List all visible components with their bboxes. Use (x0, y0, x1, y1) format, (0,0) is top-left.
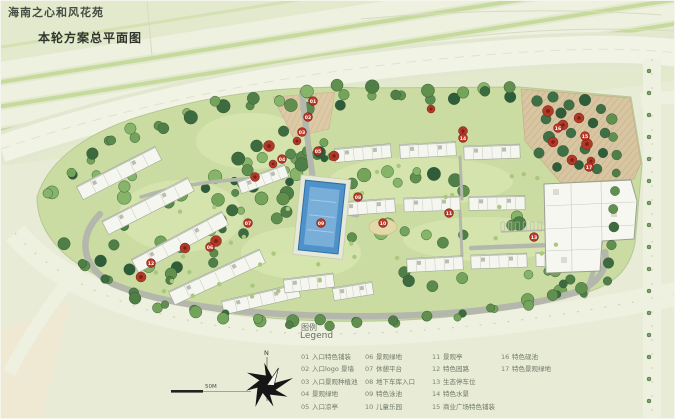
tree (421, 230, 431, 240)
tree (575, 282, 587, 294)
shrub (554, 243, 558, 247)
legend-column: 06景观绿地07休憩平台08地下车库入口09特色泳池10儿童乐园 (365, 351, 415, 413)
legend: 图例 Legend 01入口特色铺装02入口logo 景墙03入口景观种植池04… (299, 322, 649, 417)
tree (117, 190, 131, 204)
red-tree-center (585, 142, 589, 146)
plan-marker-number: 11 (446, 211, 452, 217)
red-tree-center (546, 109, 550, 113)
plan-marker-number: 03 (299, 130, 305, 136)
tree (161, 301, 169, 309)
tree (331, 79, 343, 91)
shrub (395, 256, 399, 260)
tree (271, 213, 282, 224)
building (400, 142, 457, 159)
tree (357, 168, 371, 182)
tree (609, 222, 619, 232)
tree (208, 258, 218, 268)
plan-marker-number: 17 (586, 165, 592, 171)
tree (480, 86, 490, 96)
legend-item: 08地下车库入口 (365, 376, 415, 388)
building (469, 196, 525, 211)
tree (403, 275, 415, 287)
page-subtitle: 本轮方案总平面图 (38, 29, 142, 46)
tree (592, 164, 602, 174)
legend-column: 01入口特色铺装02入口logo 景墙03入口景观种植池04景观绿地05入口凉亭 (301, 351, 358, 413)
tree (606, 114, 617, 125)
scale-label: 50M (205, 384, 217, 390)
tree (274, 96, 285, 107)
tree (78, 259, 87, 268)
shrub (162, 289, 166, 293)
red-tree-center (551, 140, 555, 144)
red-tree-center (577, 116, 581, 120)
tree (301, 85, 314, 98)
tree (427, 281, 438, 292)
tree (101, 275, 110, 284)
shrub (271, 251, 275, 255)
tree (109, 240, 120, 251)
tree (504, 81, 515, 92)
building (471, 253, 527, 269)
tree (212, 193, 225, 206)
red-tree-center (430, 108, 433, 111)
plan-marker-number: 13 (531, 235, 537, 241)
tree (524, 300, 534, 310)
plan-marker-number: 07 (245, 221, 251, 227)
legend-column: 16特色砚池17特色景观绿地 (501, 351, 551, 376)
legend-item: 04景观绿地 (301, 388, 358, 400)
legend-column: 11景观亭12特色园路13生态停车位14特色水景15商业广场特色铺装 (432, 351, 495, 413)
tree (237, 207, 245, 215)
shrub (510, 174, 514, 178)
swimming-pool (293, 175, 351, 260)
tree (552, 162, 561, 171)
tree (437, 237, 448, 248)
plan-marker: 07 (244, 219, 253, 228)
red-tree-center (183, 246, 187, 250)
tree (603, 277, 612, 286)
tree (391, 90, 401, 100)
tree (413, 167, 421, 175)
tree (58, 238, 70, 250)
tree (647, 113, 651, 117)
tree (335, 100, 345, 110)
page-title: 海南之心和风花苑 (8, 4, 104, 20)
red-tree-center (590, 160, 593, 163)
legend-item: 14特色水景 (432, 388, 495, 400)
tree (647, 179, 651, 183)
shrub (212, 205, 216, 209)
red-tree-center (253, 175, 256, 178)
tree (201, 184, 210, 193)
shrub (258, 262, 262, 266)
shrub (229, 241, 233, 245)
plan-marker: 02 (304, 113, 313, 122)
tree (564, 100, 575, 111)
legend-item: 12特色园路 (432, 363, 495, 375)
shrub (352, 255, 356, 259)
tree (232, 152, 245, 165)
plan-marker-number: 02 (305, 115, 311, 121)
legend-item: 07休憩平台 (365, 363, 415, 375)
legend-item: 01入口特色铺装 (301, 351, 358, 363)
plan-marker: 17 (585, 163, 594, 172)
plan-marker-number: 01 (310, 99, 316, 105)
tree (67, 168, 76, 177)
tree (524, 270, 533, 279)
tree (124, 264, 135, 275)
tree (547, 290, 558, 301)
tree (588, 118, 598, 128)
plan-marker: 12 (147, 259, 156, 268)
shrub (170, 279, 174, 283)
tree (647, 267, 651, 271)
tree (556, 108, 567, 119)
red-tree-center (570, 158, 574, 162)
tree (647, 135, 651, 139)
tree (647, 289, 651, 293)
tree (87, 148, 99, 160)
tree (557, 145, 568, 156)
shrub (154, 270, 158, 274)
tree (598, 148, 608, 158)
plan-marker-number: 15 (582, 134, 588, 140)
tree (486, 304, 494, 312)
plan-marker-number: 06 (207, 245, 213, 251)
tree (232, 189, 239, 196)
tree (278, 126, 289, 137)
tree (251, 140, 263, 152)
tree (612, 169, 620, 177)
red-tree-center (267, 144, 271, 148)
plan-marker: 16 (554, 124, 563, 133)
plan-marker: 10 (379, 219, 388, 228)
building (407, 256, 464, 273)
tree (43, 189, 53, 199)
legend-item: 15商业广场特色铺装 (432, 401, 495, 413)
tree (95, 255, 107, 267)
red-tree-center (296, 140, 299, 143)
legend-item: 16特色砚池 (501, 351, 551, 363)
tree (255, 192, 268, 205)
shrub (250, 284, 254, 288)
tree (559, 280, 567, 288)
legend-item: 06景观绿地 (365, 351, 415, 363)
tree (277, 192, 290, 205)
tree (427, 167, 440, 180)
tree (647, 69, 651, 73)
tree (457, 272, 468, 283)
tree (532, 96, 543, 107)
tree (285, 149, 295, 159)
tree (596, 104, 606, 114)
tree (247, 92, 259, 104)
tree (600, 128, 610, 138)
red-tree-center (332, 154, 336, 158)
plan-marker: 15 (581, 132, 590, 141)
shrub (187, 270, 191, 274)
tree (107, 136, 116, 145)
tree (603, 258, 614, 269)
shrub (242, 235, 246, 239)
shrub (396, 164, 400, 168)
tree (129, 292, 141, 304)
shrub (217, 282, 221, 286)
red-tree-center (461, 129, 464, 132)
legend-item: 10儿童乐园 (365, 401, 415, 413)
plan-marker: 01 (309, 97, 318, 106)
plan-marker: 14 (459, 134, 468, 143)
tree (421, 84, 434, 97)
legend-item: 11景观亭 (432, 351, 495, 363)
red-tree-center (214, 239, 218, 243)
tree (125, 123, 136, 134)
plan-marker-number: 04 (279, 157, 285, 163)
plan-marker-number: 09 (318, 221, 324, 227)
tree (566, 128, 576, 138)
site-plan-image: 0102030405060708091011121314151617 N 50M… (0, 0, 675, 419)
tree (257, 152, 268, 163)
plan-marker: 06 (206, 243, 215, 252)
plan-marker: 09 (317, 219, 326, 228)
shrub (450, 193, 454, 197)
shrub (276, 289, 280, 293)
tree (457, 87, 469, 99)
shrub (349, 241, 353, 245)
tree (226, 205, 238, 217)
tree (422, 311, 432, 321)
tree (609, 204, 618, 213)
legend-title-en: Legend (300, 331, 333, 341)
tree (365, 80, 379, 94)
plan-marker: 11 (445, 209, 454, 218)
tree (284, 99, 297, 112)
tree (339, 89, 350, 100)
plan-marker: 05 (314, 147, 323, 156)
shrub (540, 251, 544, 255)
plan-marker-number: 14 (460, 136, 466, 142)
shrub (316, 262, 320, 266)
red-tree-center (139, 275, 143, 279)
plan-marker-number: 08 (355, 195, 361, 201)
legend-item: 03入口景观种植池 (301, 376, 358, 388)
shrub (318, 278, 322, 282)
tree (647, 91, 651, 95)
plan-marker-number: 12 (148, 261, 154, 267)
tree (190, 306, 202, 318)
plan-marker-number: 16 (555, 126, 561, 132)
tree (548, 92, 559, 103)
shrub (535, 176, 539, 180)
shrub (191, 294, 195, 298)
tree (253, 314, 263, 324)
tree (647, 311, 651, 315)
shrub (375, 170, 379, 174)
shrub (494, 236, 498, 240)
tree (607, 240, 617, 250)
plan-marker: 08 (354, 193, 363, 202)
shrub (444, 195, 448, 199)
tree (320, 138, 328, 146)
tree (579, 94, 591, 106)
tree (381, 166, 393, 178)
plan-marker: 13 (530, 233, 539, 242)
tree (647, 201, 651, 205)
legend-item: 09特色泳池 (365, 388, 415, 400)
tree (454, 314, 461, 321)
tree (610, 186, 619, 195)
tree (647, 245, 651, 249)
legend-item: 17特色景观绿地 (501, 363, 551, 375)
plan-marker: 04 (278, 155, 287, 164)
plan-marker-number: 05 (315, 149, 321, 155)
shrub (178, 210, 182, 214)
tree (158, 123, 169, 134)
building (464, 144, 520, 160)
tree (458, 185, 470, 197)
shrub (286, 207, 290, 211)
shrub (181, 254, 185, 258)
tree (295, 158, 309, 172)
legend-item: 05入口凉亭 (301, 401, 358, 413)
tree (534, 148, 544, 158)
tree (393, 178, 402, 187)
tree (647, 223, 651, 227)
tree (285, 321, 293, 329)
tree (647, 157, 651, 161)
tree (347, 233, 357, 243)
tree (612, 150, 622, 160)
legend-item: 02入口logo 景墙 (301, 363, 358, 375)
plan-marker-number: 10 (380, 221, 386, 227)
legend-item: 13生态停车位 (432, 376, 495, 388)
shrub (250, 294, 254, 298)
shrub (497, 205, 501, 209)
plan-marker: 03 (298, 128, 307, 137)
tree (184, 111, 198, 125)
tree (119, 181, 131, 193)
north-label: N (264, 349, 269, 357)
tree (400, 227, 410, 237)
tree (210, 96, 220, 106)
red-tree-center (272, 163, 275, 166)
tree (217, 313, 229, 325)
shrub (522, 172, 526, 176)
